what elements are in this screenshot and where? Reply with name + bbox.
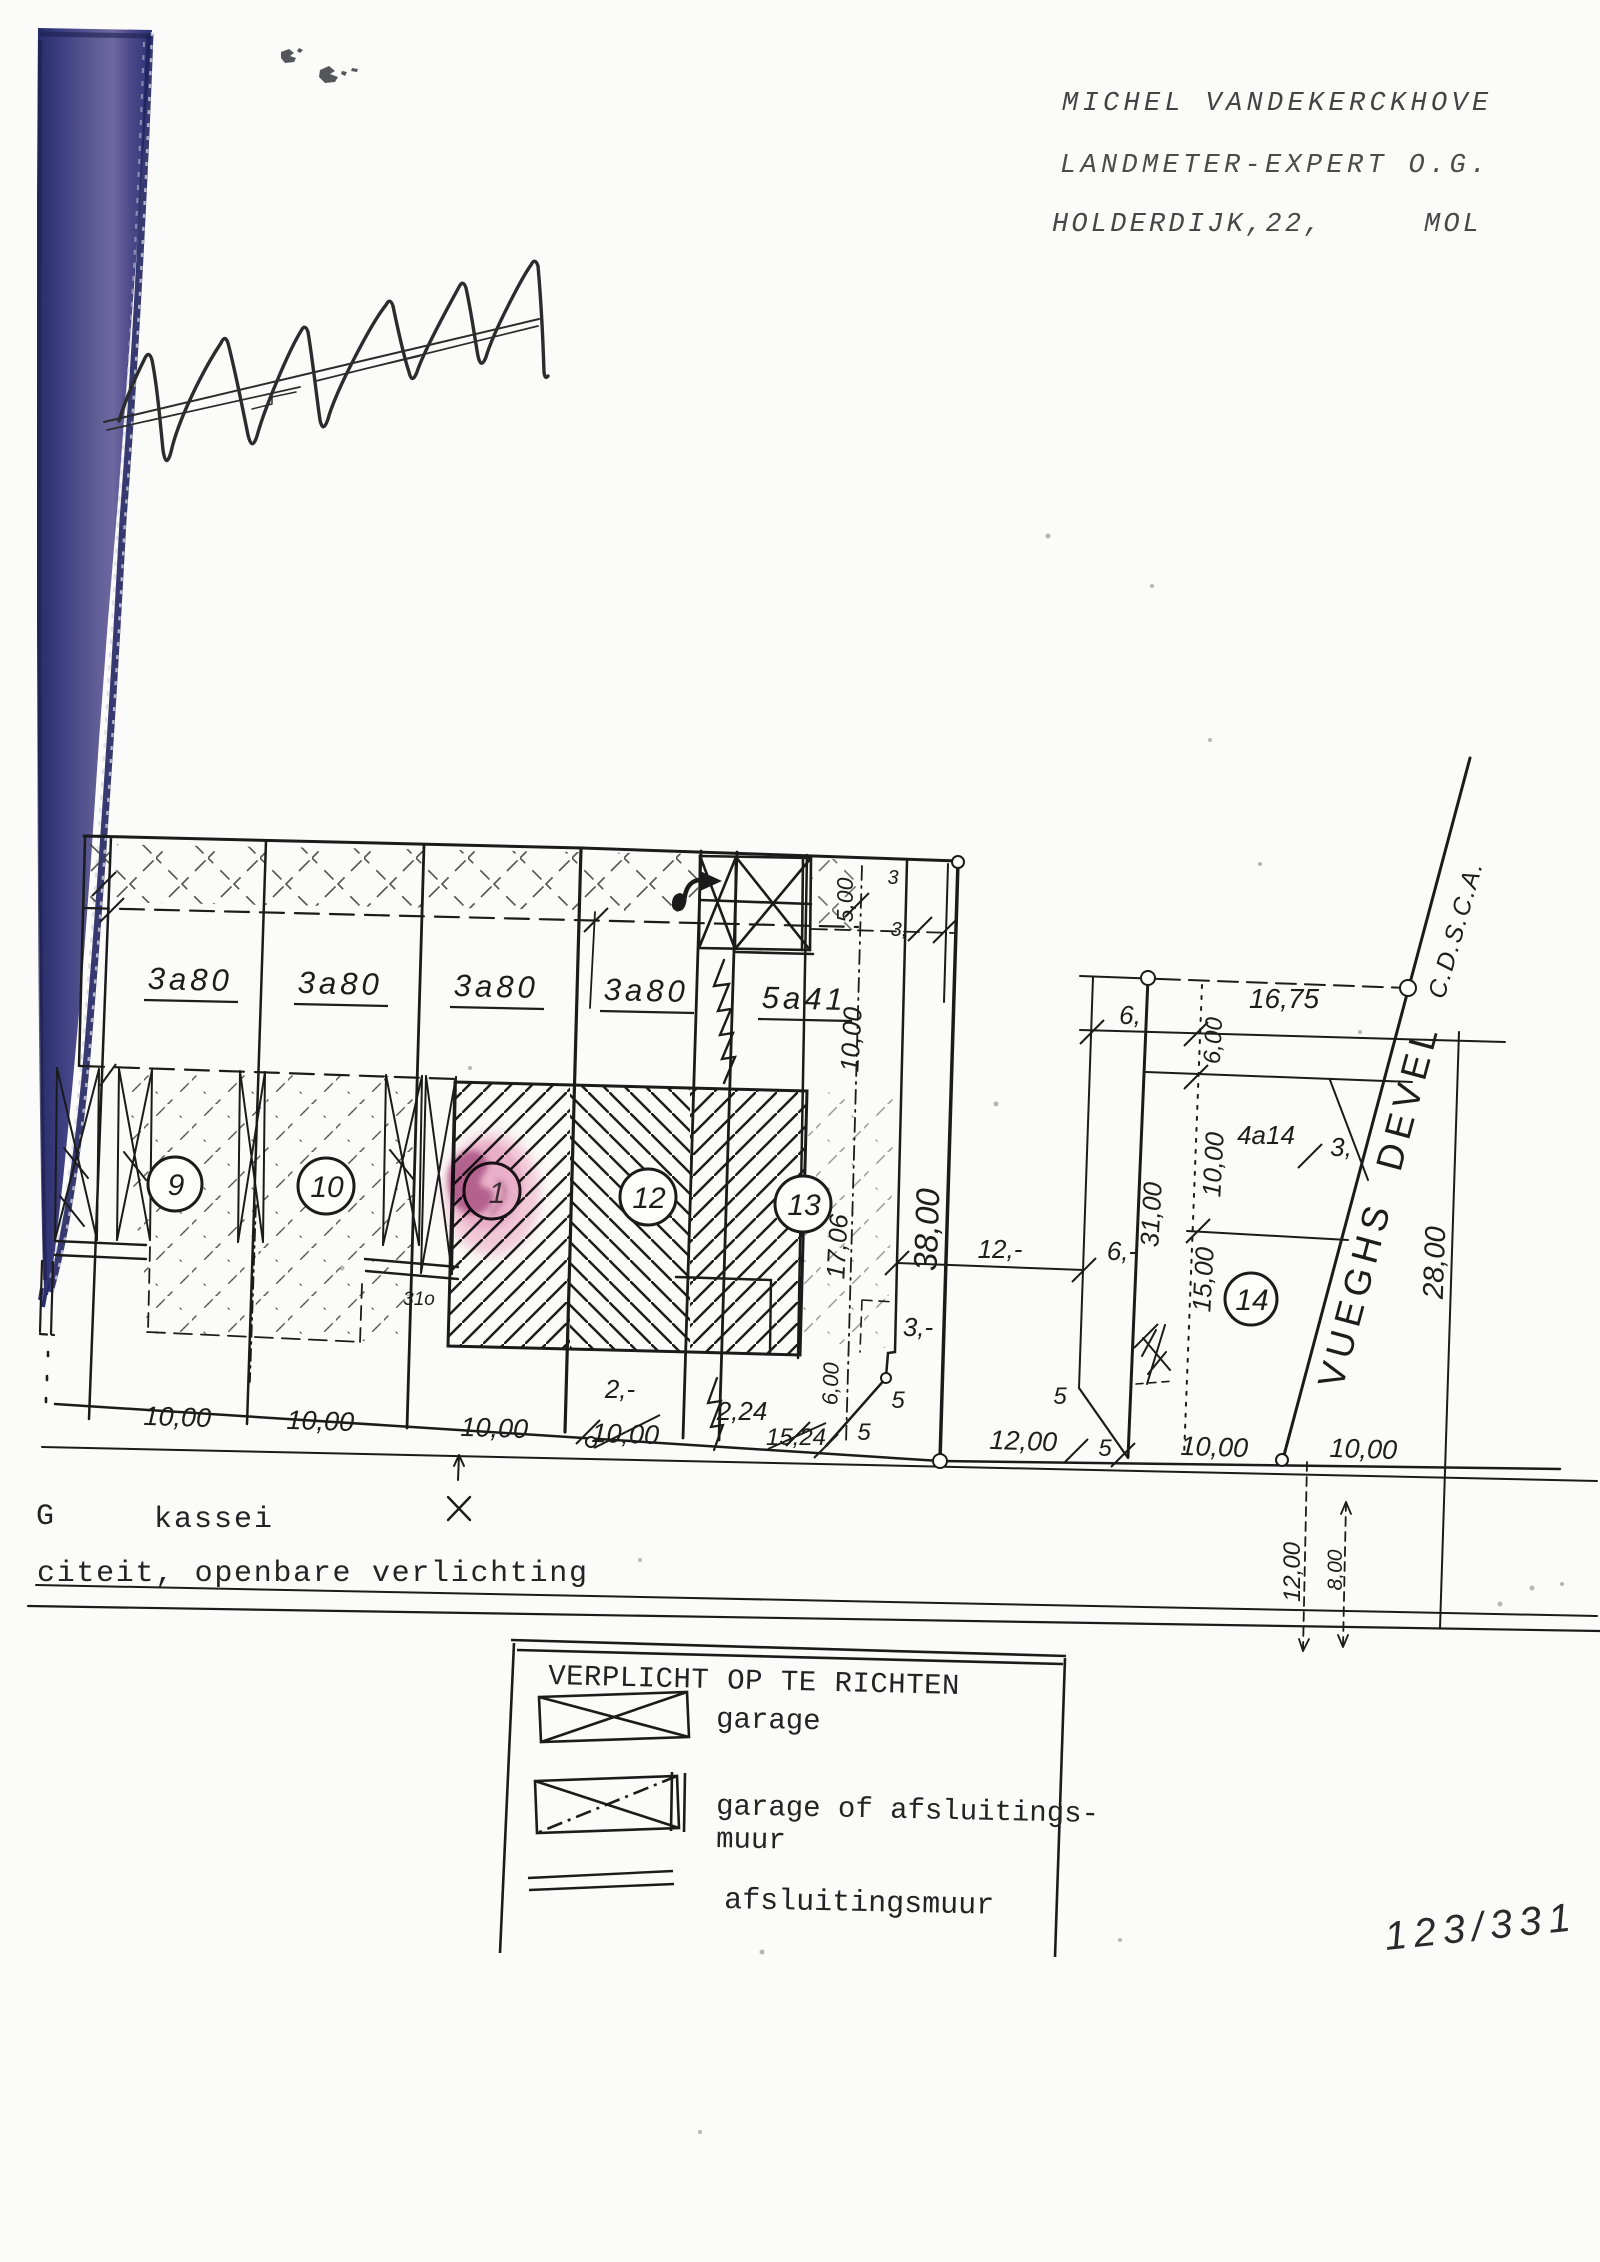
svg-text:10,00: 10,00 xyxy=(460,1412,529,1444)
svg-text:38,00: 38,00 xyxy=(907,1187,947,1271)
svg-text:2,24: 2,24 xyxy=(716,1396,768,1426)
svg-text:13: 13 xyxy=(787,1189,821,1222)
svg-text:MICHEL VANDEKERCKHOVE: MICHEL VANDEKERCKHOVE xyxy=(1062,89,1493,119)
svg-text:8,00: 8,00 xyxy=(1324,1549,1347,1590)
svg-text:10,00: 10,00 xyxy=(286,1405,355,1437)
svg-text:HOLDERDIJK,22,: HOLDERDIJK,22, xyxy=(1052,210,1324,240)
svg-text:3: 3 xyxy=(887,867,898,889)
svg-text:12,-: 12,- xyxy=(978,1234,1023,1264)
svg-text:31o: 31o xyxy=(403,1289,435,1310)
svg-text:3a80: 3a80 xyxy=(453,968,539,1005)
svg-text:3,: 3, xyxy=(891,919,908,941)
svg-text:G: G xyxy=(36,1500,54,1534)
svg-text:5: 5 xyxy=(891,1387,905,1414)
svg-text:10,00: 10,00 xyxy=(143,1401,212,1433)
svg-text:6,: 6, xyxy=(1119,1000,1141,1030)
svg-text:10,00: 10,00 xyxy=(1196,1131,1229,1198)
svg-text:garage: garage xyxy=(716,1703,821,1738)
svg-text:5: 5 xyxy=(857,1419,871,1446)
svg-text:12,00: 12,00 xyxy=(1279,1541,1306,1602)
svg-text:3a80: 3a80 xyxy=(297,965,383,1002)
svg-text:5,00: 5,00 xyxy=(832,877,858,922)
svg-text:16,75: 16,75 xyxy=(1249,983,1319,1014)
svg-text:9: 9 xyxy=(168,1169,185,1202)
svg-text:6,00: 6,00 xyxy=(1199,1016,1228,1065)
svg-text:2,-: 2,- xyxy=(604,1374,636,1404)
svg-text:5a41: 5a41 xyxy=(761,980,847,1017)
svg-text:3,-: 3,- xyxy=(903,1312,934,1342)
svg-text:17,06: 17,06 xyxy=(820,1213,853,1280)
svg-text:12: 12 xyxy=(632,1182,666,1215)
svg-text:MOL: MOL xyxy=(1424,210,1482,240)
svg-text:5: 5 xyxy=(1098,1435,1112,1462)
svg-text:10,00: 10,00 xyxy=(1180,1431,1249,1463)
svg-text:15,00: 15,00 xyxy=(1186,1246,1219,1313)
svg-text:muur: muur xyxy=(716,1823,786,1857)
svg-text:afsluitingsmuur: afsluitingsmuur xyxy=(724,1884,995,1924)
svg-text:10: 10 xyxy=(310,1171,344,1204)
svg-text:4a14: 4a14 xyxy=(1237,1120,1295,1150)
svg-text:14: 14 xyxy=(1235,1284,1268,1317)
svg-text:LANDMETER-EXPERT O.G.: LANDMETER-EXPERT O.G. xyxy=(1060,151,1491,181)
svg-text:3a80: 3a80 xyxy=(603,972,689,1009)
svg-text:10,00: 10,00 xyxy=(1329,1433,1398,1465)
svg-text:31,00: 31,00 xyxy=(1134,1181,1167,1248)
svg-text:citeit, openbare verlichting: citeit, openbare verlichting xyxy=(37,1557,589,1591)
svg-text:10,00: 10,00 xyxy=(834,1006,867,1073)
svg-text:12,00: 12,00 xyxy=(989,1425,1058,1457)
svg-text:5: 5 xyxy=(1053,1383,1067,1410)
svg-text:3,: 3, xyxy=(1330,1132,1352,1162)
svg-text:6,-: 6,- xyxy=(1107,1236,1138,1266)
svg-text:28,00: 28,00 xyxy=(1418,1226,1453,1301)
svg-text:3a80: 3a80 xyxy=(147,961,233,998)
svg-text:kassei: kassei xyxy=(154,1503,274,1537)
svg-text:6,00: 6,00 xyxy=(817,1361,844,1405)
